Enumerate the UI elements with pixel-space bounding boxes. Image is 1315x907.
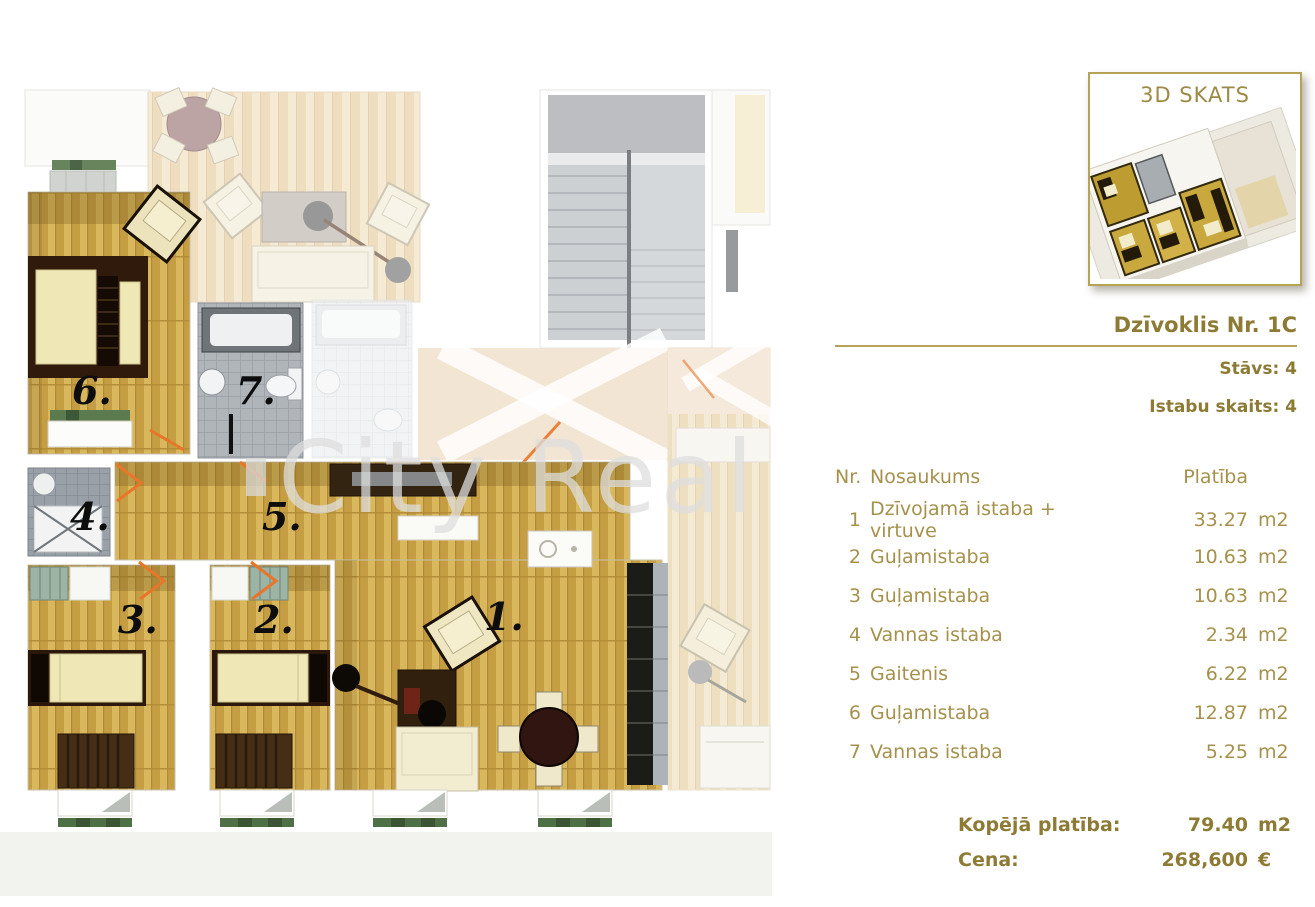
room-2-label: 2.	[253, 597, 294, 642]
table-row: 3 Guļamistaba 10.63 m2	[835, 576, 1297, 615]
details-panel: 3D SKATS	[835, 0, 1297, 907]
floor-plan-image: 6. 7. 4. 5. 3. 2. 1. City Real	[0, 0, 830, 907]
totals: Kopējā platība: 79.40 m2 Cena: 268,600 €	[835, 812, 1297, 882]
double-bed-icon	[28, 256, 148, 378]
room-table-header: Nr. Nosaukums Platība	[835, 462, 1297, 492]
sofa-icon	[396, 727, 478, 791]
total-area-unit: m2	[1248, 812, 1297, 838]
wardrobe-icon	[30, 567, 68, 600]
room-7-label: 7.	[236, 368, 276, 413]
room-table: Nr. Nosaukums Platība 1 Dzīvojamā istaba…	[835, 462, 1297, 771]
stairwell	[540, 90, 712, 348]
room-1-living-kitchen	[332, 531, 668, 791]
sink-icon	[33, 473, 55, 495]
table-row: 4 Vannas istaba 2.34 m2	[835, 615, 1297, 654]
kitchen-counter-icon	[528, 531, 592, 567]
room-3-label: 3.	[118, 597, 158, 642]
room-6-label: 6.	[72, 368, 112, 413]
table-row: 5 Gaitenis 6.22 m2	[835, 654, 1297, 693]
room-count-value: Istabu skaits: 4	[1149, 397, 1297, 417]
room-table-rows: 1 Dzīvojamā istaba + virtuve 33.27 m2 2 …	[835, 498, 1297, 771]
bench-icon	[216, 734, 292, 788]
table-row: 7 Vannas istaba 5.25 m2	[835, 732, 1297, 771]
bathtub-icon	[202, 308, 300, 352]
table-row: 1 Dzīvojamā istaba + virtuve 33.27 m2	[835, 498, 1297, 537]
price-unit: €	[1248, 847, 1297, 873]
room-1-label: 1.	[484, 594, 524, 639]
watermark-logo-icon	[246, 458, 266, 496]
kitchen-unit-icon	[627, 563, 668, 785]
watermark-text: City Real	[278, 419, 757, 536]
total-area-label: Kopējā platība:	[958, 812, 1120, 838]
total-area-row: Kopējā platība: 79.40 m2	[835, 812, 1297, 838]
price-value: 268,600	[1019, 847, 1248, 873]
bench-icon	[58, 734, 134, 788]
table-row: 6 Guļamistaba 12.87 m2	[835, 693, 1297, 732]
table-row: 2 Guļamistaba 10.63 m2	[835, 537, 1297, 576]
3d-view-thumbnail[interactable]: 3D SKATS	[1088, 72, 1302, 286]
bottom-band	[0, 832, 772, 896]
col-header-nr: Nr.	[835, 466, 861, 488]
total-area-value: 79.40	[1120, 812, 1248, 838]
3d-view-label: 3D SKATS	[1090, 83, 1300, 107]
single-bed-icon	[212, 650, 330, 706]
sink-icon	[199, 369, 225, 395]
price-label: Cena:	[958, 847, 1019, 873]
desk-icon	[398, 670, 456, 728]
single-bed-icon	[28, 650, 146, 706]
col-header-area: Platība	[1113, 466, 1248, 488]
watermark: City Real	[246, 419, 757, 536]
room-6-bedroom	[28, 186, 200, 454]
price-row: Cena: 268,600 €	[835, 847, 1297, 873]
floor-value: Stāvs: 4	[1219, 359, 1297, 379]
gold-divider	[835, 345, 1297, 347]
apartment-title: Dzīvoklis Nr. 1C	[1114, 313, 1297, 337]
window-sill	[48, 410, 132, 447]
col-header-name: Nosaukums	[861, 466, 1113, 488]
listing-page: 6. 7. 4. 5. 3. 2. 1. City Real 3D SKATS	[0, 0, 1315, 907]
3d-view-mini-plan	[1090, 107, 1296, 279]
floor-plan: 6. 7. 4. 5. 3. 2. 1. City Real	[0, 0, 830, 907]
room-4-label: 4.	[70, 494, 110, 539]
